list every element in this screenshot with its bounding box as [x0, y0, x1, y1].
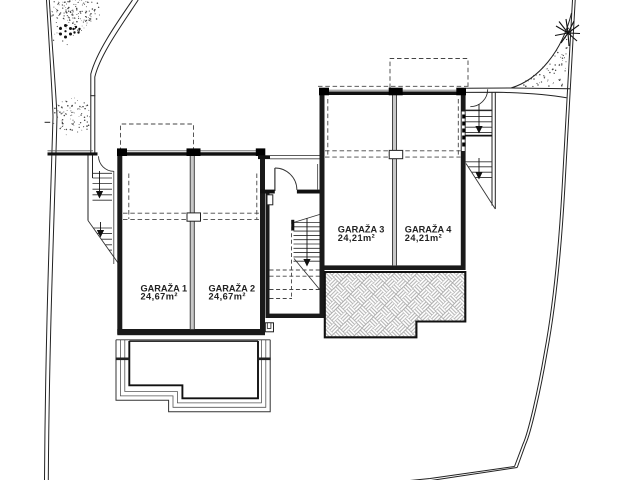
svg-text:24,67m²: 24,67m² — [141, 292, 178, 302]
svg-text:24,21m²: 24,21m² — [338, 233, 375, 243]
svg-text:24,67m²: 24,67m² — [209, 292, 246, 302]
svg-text:24,21m²: 24,21m² — [405, 233, 442, 243]
